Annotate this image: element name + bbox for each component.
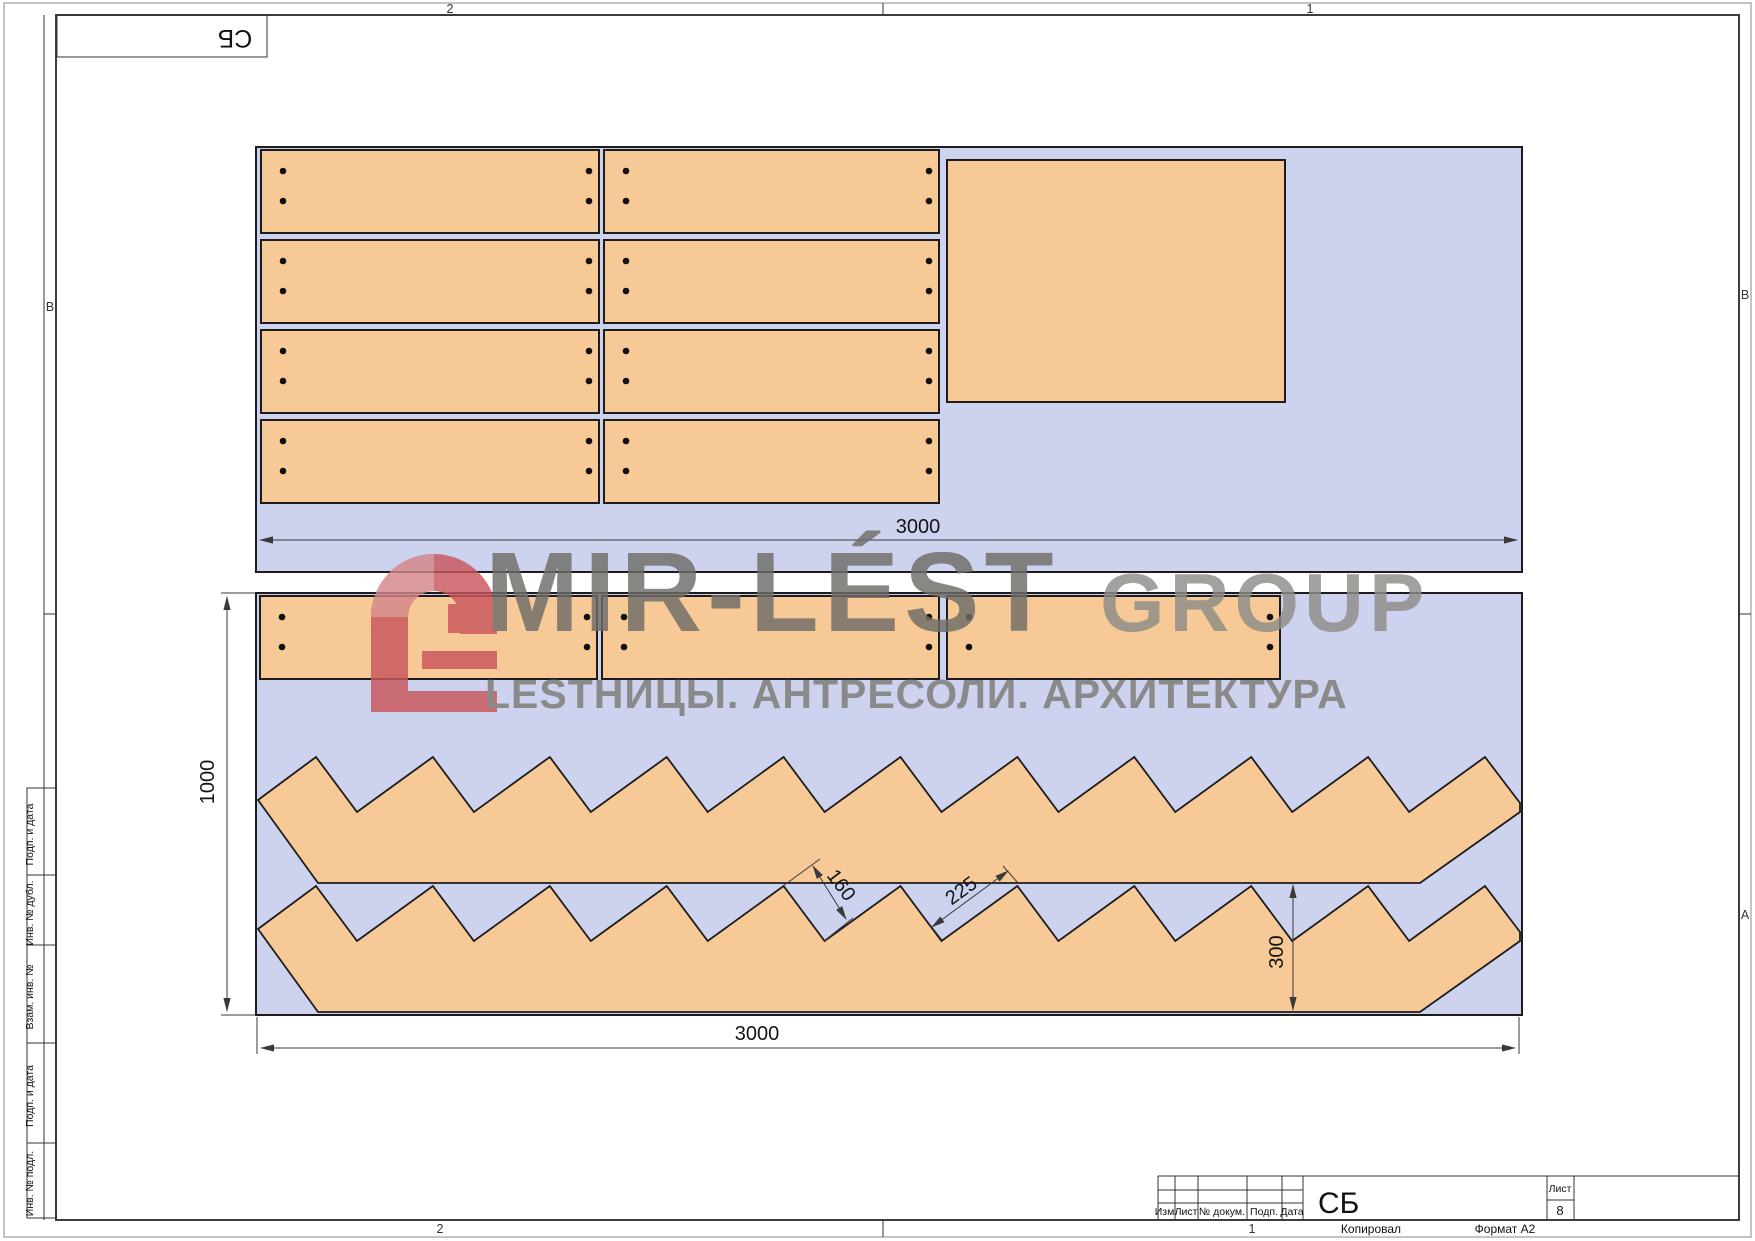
stamp-sheet-number: 8 <box>1556 1203 1563 1218</box>
screw-hole <box>280 168 287 175</box>
screw-hole <box>623 168 630 175</box>
screw-hole <box>623 288 630 295</box>
screw-hole <box>280 258 287 265</box>
screw-hole <box>623 258 630 265</box>
screw-hole <box>279 644 286 651</box>
panel <box>261 240 599 323</box>
sidebar-label: Взам. инв. № <box>24 964 36 1029</box>
zone-top-1: 1 <box>1307 2 1314 16</box>
screw-hole <box>280 438 287 445</box>
dim-stringer-width: 300 <box>1266 935 1288 968</box>
dim-sheet2-width: 3000 <box>735 1023 780 1045</box>
screw-hole <box>280 378 287 385</box>
panel <box>604 330 939 413</box>
zone-bottom-1: 1 <box>1249 1222 1256 1236</box>
screw-hole <box>926 198 933 205</box>
sidebar-stack: Подп. и датаИнв. № дубл.Взам. инв. №Подп… <box>24 788 56 1218</box>
screw-hole <box>586 168 593 175</box>
sidebar-label: Подп. и дата <box>24 803 36 865</box>
watermark-tagline: LESТНИЦЫ. АНТРЕСОЛИ. АРХИТЕКТУРА <box>485 671 1348 717</box>
panel <box>604 150 939 233</box>
stamp-col-podp: Подп. <box>1250 1206 1278 1218</box>
screw-hole <box>280 198 287 205</box>
stamp-format-label: Формат А2 <box>1475 1222 1536 1236</box>
zone-right-b: B <box>1741 288 1749 302</box>
stamp-col-docnum: № докум. <box>1199 1206 1245 1218</box>
watermark: MIR-LÉST GROUP LESТНИЦЫ. АНТРЕСОЛИ. АРХИ… <box>371 529 1429 717</box>
watermark-brand-suffix: GROUP <box>1100 556 1429 649</box>
screw-hole <box>926 258 933 265</box>
screw-hole <box>623 468 630 475</box>
sidebar-label: Инв. № подл. <box>24 1151 36 1216</box>
screw-hole <box>623 378 630 385</box>
panel <box>261 420 599 503</box>
dim-sheet2-height: 1000 <box>197 760 219 805</box>
zone-top-2: 2 <box>447 2 454 16</box>
sidebar-label: Инв. № дубл. <box>24 880 36 945</box>
stamp-doc-code: СБ <box>1318 1187 1359 1220</box>
stamp-copied-label: Копировал <box>1341 1222 1401 1236</box>
screw-hole <box>586 438 593 445</box>
screw-hole <box>926 438 933 445</box>
screw-hole <box>926 168 933 175</box>
screw-hole <box>926 468 933 475</box>
screw-hole <box>926 378 933 385</box>
zone-bottom-2: 2 <box>437 1222 444 1236</box>
panel <box>604 240 939 323</box>
stamp-col-data: Дата <box>1280 1206 1303 1218</box>
screw-hole <box>586 348 593 355</box>
screw-hole <box>279 614 286 621</box>
screw-hole <box>623 438 630 445</box>
screw-hole <box>586 378 593 385</box>
watermark-brand: MIR-LÉST <box>485 529 1059 655</box>
screw-hole <box>586 288 593 295</box>
corner-stamp-label: СБ <box>218 24 252 52</box>
screw-hole <box>623 348 630 355</box>
title-block: Изм. Лист № докум. Подп. Дата СБ Лист 8 … <box>1155 1176 1739 1236</box>
screw-hole <box>926 348 933 355</box>
cad-canvas: 3000 3000 1000 160 225 300 <box>0 0 1755 1241</box>
screw-hole <box>280 348 287 355</box>
panel <box>261 150 599 233</box>
panel <box>947 160 1285 402</box>
panel <box>604 420 939 503</box>
zone-left-b: B <box>46 300 54 314</box>
screw-hole <box>586 258 593 265</box>
screw-hole <box>280 468 287 475</box>
sidebar-label: Подп. и дата <box>24 1065 36 1127</box>
screw-hole <box>623 198 630 205</box>
screw-hole <box>586 198 593 205</box>
stamp-sheet-label: Лист <box>1549 1183 1572 1195</box>
drawing-page: 3000 3000 1000 160 225 300 <box>0 0 1755 1241</box>
screw-hole <box>926 288 933 295</box>
panel <box>261 330 599 413</box>
screw-hole <box>280 288 287 295</box>
screw-hole <box>586 468 593 475</box>
stamp-col-list: Лист <box>1175 1206 1198 1218</box>
zone-right-a: A <box>1741 908 1750 922</box>
